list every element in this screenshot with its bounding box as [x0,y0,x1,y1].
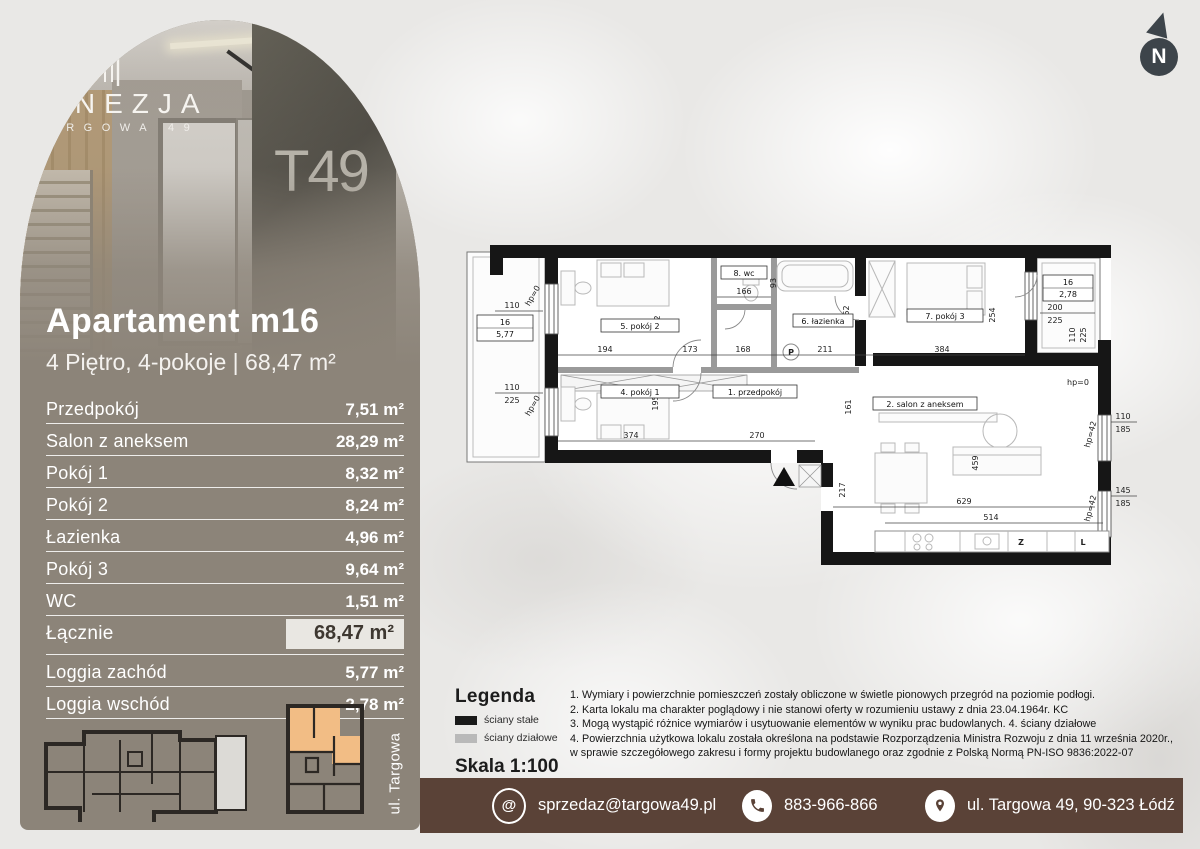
room-name: Pokój 1 [46,463,108,484]
table-row: Pokój 18,32 m² [46,456,404,488]
loggia-west-area [467,252,545,462]
table-row: Loggia zachód5,77 m² [46,655,404,687]
room-area: 8,24 m² [345,496,404,516]
room-area: 4,96 m² [345,528,404,548]
room-name: Salon z aneksem [46,431,189,452]
arch-door-icon [76,32,128,88]
dishwasher-label: Z [1018,538,1024,547]
svg-text:P: P [788,348,794,357]
total-area-badge: 68,47 m² [286,619,404,649]
scale-label: Skala 1:100 [455,756,575,778]
fridge-label: L [1080,538,1085,547]
email-text[interactable]: sprzedaz@targowa49.pl [538,796,716,815]
footer-email[interactable]: @ sprzedaz@targowa49.pl [492,778,716,833]
svg-text:110: 110 [1115,412,1130,421]
svg-text:629: 629 [956,497,971,506]
svg-text:168: 168 [735,345,750,354]
phone-text[interactable]: 883-966-866 [784,796,878,815]
svg-text:173: 173 [682,345,697,354]
footer-phone[interactable]: 883-966-866 [742,778,878,833]
room-name: Przedpokój [46,399,139,420]
room-name: Pokój 2 [46,495,108,516]
note-line: 4. Powierzchnia użytkowa lokalu została … [570,732,1176,761]
room-label-lazienka: 6. łazienka [801,317,844,326]
svg-text:374: 374 [623,431,638,440]
room-label-pokoj3: 7. pokój 3 [925,311,964,321]
svg-text:185: 185 [1115,499,1130,508]
svg-text:270: 270 [749,431,764,440]
highlighted-apartment-shape [290,708,360,764]
location-pin-icon [925,790,955,822]
table-row: Salon z aneksem28,29 m² [46,424,404,456]
svg-text:145: 145 [1115,486,1130,495]
room-label-pokoj2: 5. pokój 2 [620,321,659,331]
solid-wall-swatch [455,716,477,725]
svg-text:194: 194 [597,345,612,354]
table-row: Łazienka4,96 m² [46,520,404,552]
note-line: 1. Wymiary i powierzchnie pomieszczeń zo… [570,688,1176,703]
table-row: Przedpokój7,51 m² [46,392,404,424]
svg-text:225: 225 [1047,316,1062,325]
phone-icon [742,790,772,822]
room-name: WC [46,591,77,612]
loggia-east-area-label: 2,78 [1059,290,1077,299]
note-line: 2. Karta lokalu ma charakter poglądowy i… [570,703,1176,718]
room-area: 9,64 m² [345,560,404,580]
room-label-salon: 2. salon z aneksem [886,400,963,409]
loggia-east-no: 16 [1063,278,1073,287]
legend-partition-label: ściany działowe [484,732,558,744]
legend-title: Legenda [455,686,575,708]
disclaimer-notes: 1. Wymiary i powierzchnie pomieszczeń zo… [570,688,1176,761]
footer-address[interactable]: ul. Targowa 49, 90-323 Łódź [925,778,1175,833]
room-area: 5,77 m² [345,663,404,683]
room-name: Loggia wschód [46,694,170,715]
address-text: ul. Targowa 49, 90-323 Łódź [967,796,1175,815]
table-row: Pokój 39,64 m² [46,552,404,584]
svg-text:110: 110 [504,301,519,310]
svg-text:225: 225 [1079,327,1088,342]
loggia-west-no: 16 [500,318,510,327]
washing-machine-icon: P [783,344,799,360]
room-name: Loggia zachód [46,662,167,683]
room-name: Pokój 3 [46,559,108,580]
floor-plan: P Z L 194 173 168 211 384 374 270 166 11… [455,235,1140,630]
svg-text:hp=0: hp=0 [1067,378,1089,387]
svg-text:225: 225 [504,396,519,405]
svg-text:217: 217 [838,482,847,497]
north-compass-icon: N [1140,38,1178,76]
brand-subname: TARGOWA 49 [34,122,199,134]
page-title: Apartament m16 [46,302,406,341]
mini-plan-apartment-highlight [280,698,372,820]
partition-wall-swatch [455,734,477,743]
table-row-total: Łącznie68,47 m² [46,616,404,655]
svg-text:161: 161 [844,399,853,414]
svg-text:384: 384 [934,345,949,354]
street-label: ul. Targowa [387,699,404,831]
svg-text:166: 166 [736,287,751,296]
svg-text:110: 110 [504,383,519,392]
apartment-info-panel: T49 FINEZJA TARGOWA 49 Apartament m16 4 … [20,20,420,830]
room-area-table: Przedpokój7,51 m² Salon z aneksem28,29 m… [46,392,404,719]
svg-text:93: 93 [769,278,778,288]
room-area: 28,29 m² [336,432,404,452]
loggia-west-area-label: 5,77 [496,330,514,339]
svg-text:254: 254 [988,307,997,322]
room-label-wc: 8. wc [733,269,754,278]
table-row: WC1,51 m² [46,584,404,616]
svg-text:211: 211 [817,345,832,354]
total-label: Łącznie [46,623,114,645]
room-area: 8,32 m² [345,464,404,484]
legend-solid-label: ściany stałe [484,714,539,726]
room-label-przedpokoj: 1. przedpokój [728,387,782,397]
table-row: Pokój 28,24 m² [46,488,404,520]
svg-text:110: 110 [1068,327,1077,342]
entrance-arrow-icon [773,467,795,486]
email-icon: @ [492,788,526,824]
room-label-pokoj1: 4. pokój 1 [620,387,659,397]
room-area: 1,51 m² [345,592,404,612]
svg-text:459: 459 [971,455,980,470]
brand-name: FINEZJA [32,88,209,120]
contact-footer: @ sprzedaz@targowa49.pl 883-966-866 ul. … [420,778,1183,833]
room-area: 7,51 m² [345,400,404,420]
svg-text:514: 514 [983,513,998,522]
legend: Legenda ściany stałe ściany działowe Ska… [455,686,575,778]
page-subtitle: 4 Piętro, 4-pokoje | 68,47 m² [46,349,406,376]
mini-plan-floor [32,714,254,822]
room-name: Łazienka [46,527,120,548]
note-line: 3. Mogą wystąpić różnice wymiarów i usyt… [570,717,1176,732]
svg-text:200: 200 [1047,303,1062,312]
svg-text:185: 185 [1115,425,1130,434]
